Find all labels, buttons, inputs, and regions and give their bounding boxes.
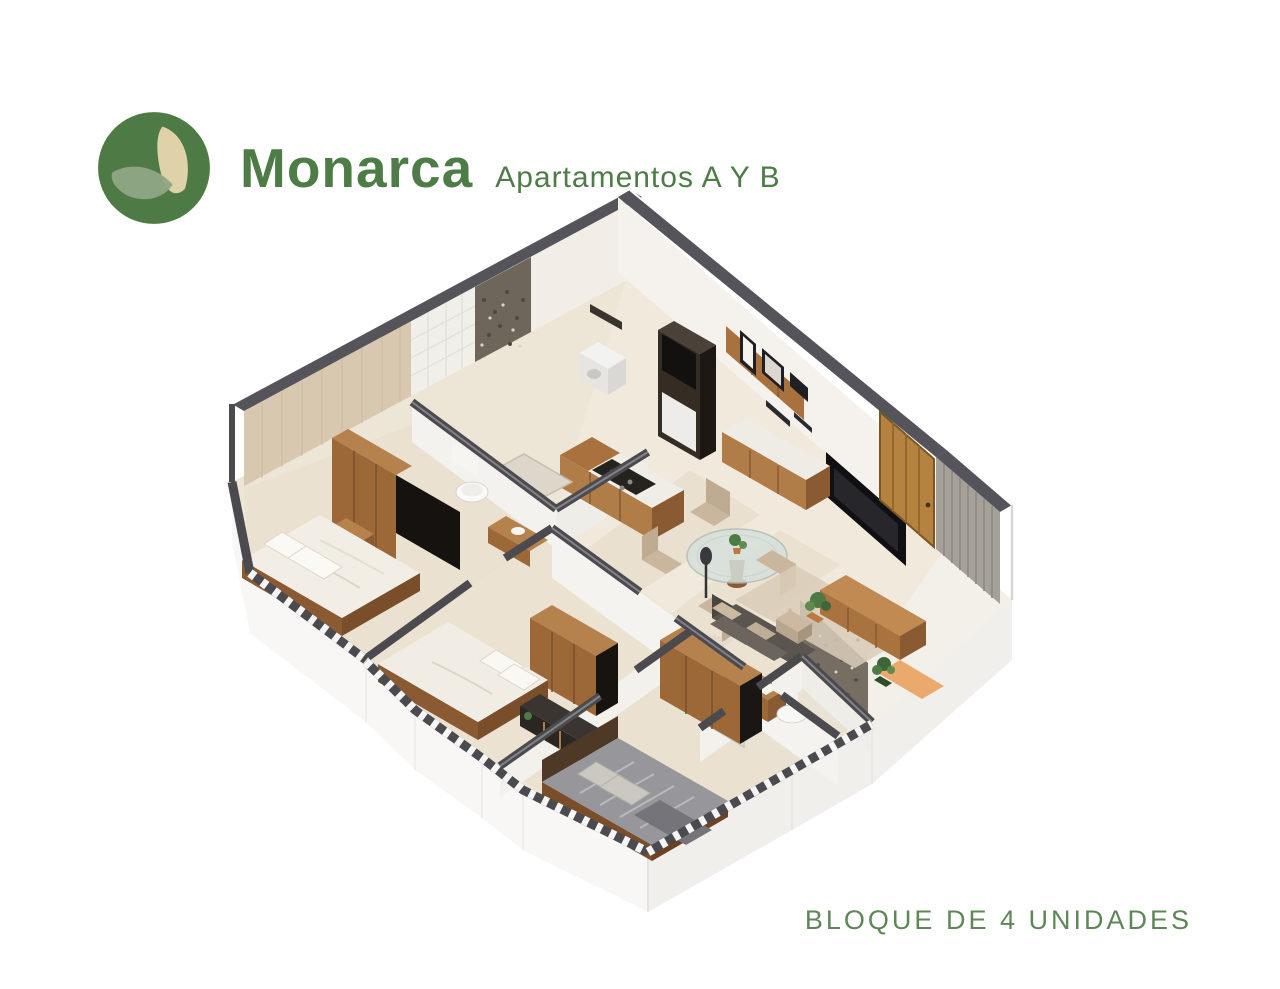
door-handle bbox=[926, 503, 931, 508]
flyer-page: Monarca Apartamentos A Y B bbox=[0, 0, 1280, 989]
isometric-floorplan bbox=[0, 0, 1280, 989]
small-plant bbox=[524, 712, 532, 720]
sink bbox=[511, 527, 525, 535]
tall-fridge-unit bbox=[658, 321, 716, 460]
footer-caption: BLOQUE DE 4 UNIDADES bbox=[805, 905, 1192, 936]
